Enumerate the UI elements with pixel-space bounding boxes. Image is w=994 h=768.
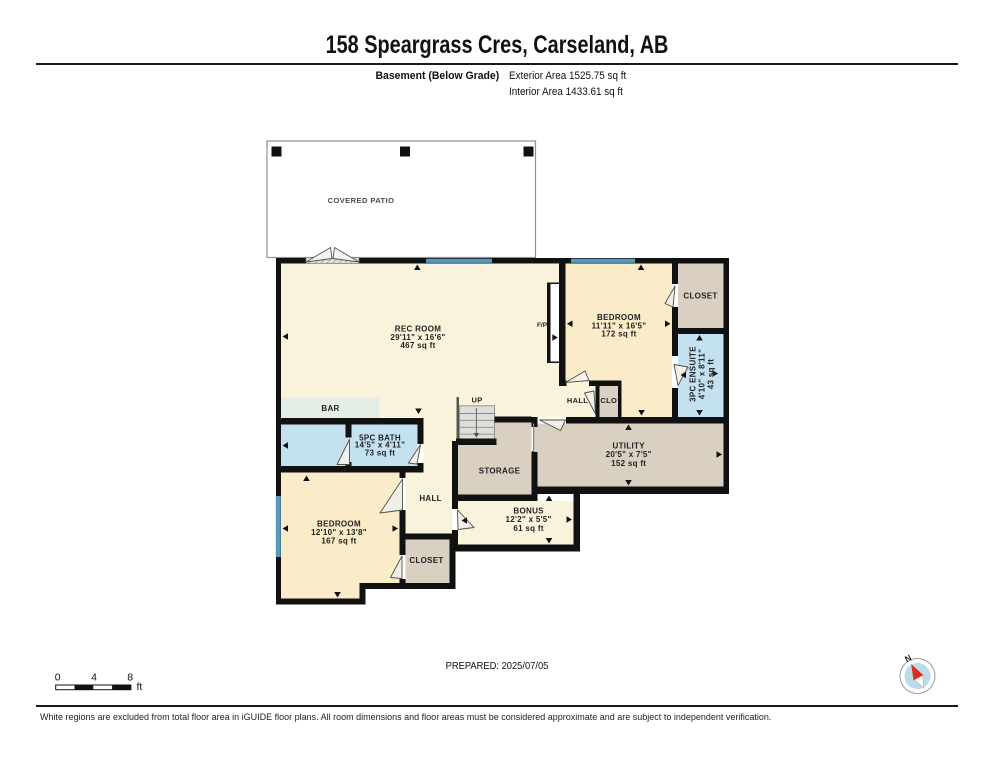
svg-text:4'10" x 8'11": 4'10" x 8'11" (698, 349, 707, 399)
svg-text:STORAGE: STORAGE (479, 466, 521, 475)
svg-text:43 sq ft: 43 sq ft (707, 359, 716, 389)
svg-text:73 sq ft: 73 sq ft (365, 449, 395, 458)
svg-text:8: 8 (127, 672, 133, 684)
svg-text:167 sq ft: 167 sq ft (321, 536, 356, 545)
svg-text:CLOSET: CLOSET (409, 556, 443, 565)
svg-text:172 sq ft: 172 sq ft (601, 330, 636, 339)
svg-text:0: 0 (55, 672, 61, 684)
svg-text:HALL: HALL (567, 396, 588, 405)
svg-text:BAR: BAR (321, 404, 339, 413)
svg-text:20'5" x 7'5": 20'5" x 7'5" (606, 450, 652, 459)
svg-text:COVERED PATIO: COVERED PATIO (328, 196, 395, 205)
svg-text:CLOSET: CLOSET (683, 292, 717, 301)
svg-text:F/P: F/P (537, 322, 548, 329)
svg-text:3PC ENSUITE: 3PC ENSUITE (689, 346, 698, 402)
svg-text:4: 4 (91, 672, 97, 684)
svg-text:CLO: CLO (600, 396, 617, 405)
svg-text:467 sq ft: 467 sq ft (400, 341, 435, 350)
svg-text:ft: ft (137, 681, 143, 693)
svg-text:61 sq ft: 61 sq ft (513, 524, 543, 533)
svg-text:152 sq ft: 152 sq ft (611, 459, 646, 468)
svg-text:12'2" x 5'5": 12'2" x 5'5" (506, 515, 552, 524)
svg-text:UP: UP (471, 395, 482, 404)
svg-text:HALL: HALL (419, 494, 442, 503)
